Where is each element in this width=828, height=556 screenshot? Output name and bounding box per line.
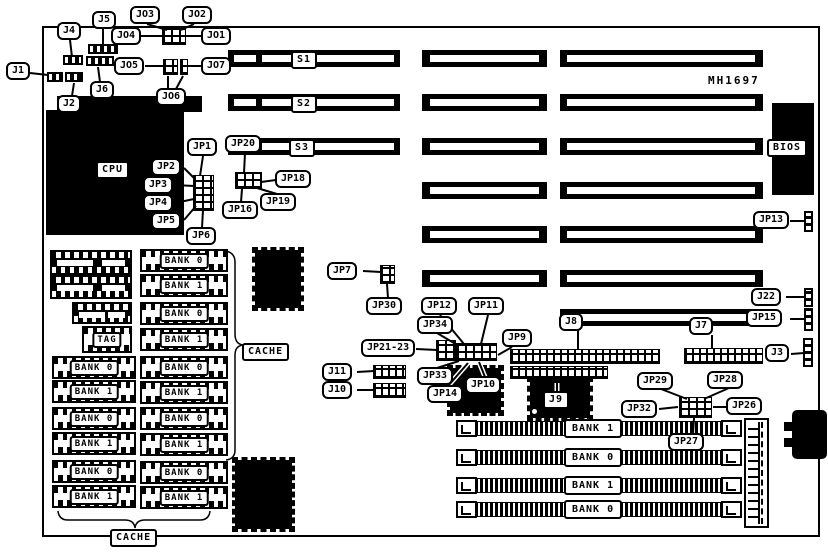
cpu-label: CPU bbox=[96, 161, 129, 179]
j10-connector bbox=[373, 383, 406, 398]
simm-clip-right bbox=[721, 449, 742, 466]
callout-jp30: JP30 bbox=[366, 297, 402, 315]
jp15-connector bbox=[804, 308, 813, 331]
chip-label: BANK 0 bbox=[70, 360, 119, 376]
part-number: MH1697 bbox=[708, 74, 760, 87]
j1-connector-a bbox=[47, 72, 63, 82]
callout-jp5: JP5 bbox=[151, 212, 181, 230]
isa-slot-mid-2 bbox=[422, 94, 547, 111]
cache-chip: BANK 1 bbox=[140, 486, 228, 509]
isa-slot-right-2 bbox=[560, 94, 763, 111]
callout-jo3: JO3 bbox=[130, 6, 160, 24]
chip-label: BANK 1 bbox=[70, 384, 119, 400]
chip-label: BANK 0 bbox=[70, 464, 119, 480]
cache-chip: BANK 0 bbox=[140, 461, 228, 484]
jo5-jumper-block bbox=[163, 59, 178, 75]
pin-header-strip bbox=[510, 366, 608, 379]
slot-label-s1: S1 bbox=[291, 51, 317, 69]
callout-jp18: JP18 bbox=[275, 170, 311, 188]
j9-pin1-dot bbox=[532, 409, 537, 414]
slot-label-s2: S2 bbox=[291, 95, 317, 113]
callout-jp34: JP34 bbox=[417, 316, 453, 334]
jp9-jp14-jumper-block bbox=[456, 343, 497, 361]
chip-label: BANK 1 bbox=[70, 489, 119, 505]
simm-bank-label: BANK 0 bbox=[564, 448, 622, 467]
simm-slot-2: BANK 0 bbox=[456, 449, 742, 467]
chip-label: BANK 1 bbox=[70, 436, 119, 452]
callout-jp33: JP33 bbox=[417, 367, 453, 385]
isa-slot-mid-6 bbox=[422, 270, 547, 287]
callout-j10: J10 bbox=[322, 381, 352, 399]
isa-slot-right-4 bbox=[560, 182, 763, 199]
cache-chip: BANK 1 bbox=[52, 380, 136, 403]
jo1-jo4-jumper-block bbox=[162, 28, 186, 45]
callout-j7: J7 bbox=[689, 317, 713, 335]
jp21-23-jumper-block bbox=[436, 340, 456, 361]
j22-connector bbox=[804, 288, 813, 307]
jp1-jp6-jumper-block bbox=[193, 175, 214, 211]
isa-slot-right-6 bbox=[560, 270, 763, 287]
simm-clip-right bbox=[721, 477, 742, 494]
tag-chip: TAG bbox=[82, 326, 132, 353]
cache-chip: BANK 0 bbox=[140, 302, 228, 325]
dip-socket-unlabeled-2 bbox=[50, 275, 132, 299]
jp26-jp29-jumper-block bbox=[679, 397, 712, 418]
callout-jp20: JP20 bbox=[225, 135, 261, 153]
callout-j8: J8 bbox=[559, 313, 583, 331]
callout-jp21-23: JP21-23 bbox=[361, 339, 415, 357]
callout-jp10: JP10 bbox=[465, 376, 501, 394]
callout-jo7: JO7 bbox=[201, 57, 231, 75]
chip-label: BANK 1 bbox=[160, 278, 209, 294]
callout-jo6: JO6 bbox=[156, 88, 186, 106]
cache-chip: BANK 1 bbox=[140, 328, 228, 351]
callout-jp26: JP26 bbox=[726, 397, 762, 415]
chip-label: BANK 1 bbox=[160, 437, 209, 453]
chip-label: BANK 0 bbox=[160, 253, 209, 269]
isa-slot-right-7 bbox=[560, 309, 758, 326]
j8-pin-header bbox=[510, 349, 660, 364]
j9-label: J9 bbox=[543, 391, 569, 409]
keyboard-connector bbox=[792, 410, 827, 459]
dip-socket-unlabeled-1 bbox=[50, 250, 132, 275]
simm-clip-right bbox=[721, 420, 742, 437]
cache-chip: BANK 0 bbox=[140, 356, 228, 379]
chip-label: BANK 1 bbox=[160, 490, 209, 506]
j7-pin-header bbox=[684, 348, 763, 364]
isa-slot-right-5 bbox=[560, 226, 763, 243]
chip-label: BANK 1 bbox=[160, 385, 209, 401]
power-connector bbox=[744, 418, 769, 528]
jp16-jp20-jumper-block bbox=[235, 172, 262, 189]
callout-j6: J6 bbox=[90, 81, 114, 99]
slot-label-s3: S3 bbox=[289, 139, 315, 157]
callout-jp6: JP6 bbox=[186, 227, 216, 245]
callout-jp28: JP28 bbox=[707, 371, 743, 389]
callout-jp32: JP32 bbox=[621, 400, 657, 418]
cache-chip: BANK 1 bbox=[140, 381, 228, 404]
j5-connector bbox=[88, 44, 118, 54]
j2-connector bbox=[65, 72, 83, 82]
jp13-connector bbox=[804, 211, 813, 232]
simm-bank-label: BANK 1 bbox=[564, 419, 622, 438]
callout-j1: J1 bbox=[6, 62, 30, 80]
isa-slot-mid-3 bbox=[422, 138, 547, 155]
cache-label-right: CACHE bbox=[242, 343, 289, 361]
jp7-jumper-block bbox=[380, 265, 395, 284]
callout-jp27: JP27 bbox=[668, 433, 704, 451]
simm-clip-left bbox=[456, 501, 477, 518]
cache-chip: BANK 0 bbox=[140, 249, 228, 272]
chip-label: BANK 0 bbox=[160, 360, 209, 376]
callout-jp15: JP15 bbox=[746, 309, 782, 327]
j4-connector bbox=[63, 55, 83, 65]
callout-jp14: JP14 bbox=[427, 385, 463, 403]
chip-label: BANK 0 bbox=[160, 465, 209, 481]
dip-socket-unlabeled-3 bbox=[72, 302, 132, 324]
callout-j11: J11 bbox=[322, 363, 352, 381]
callout-jp9: JP9 bbox=[502, 329, 532, 347]
callout-jo2: JO2 bbox=[182, 6, 212, 24]
bios-label: BIOS bbox=[767, 139, 807, 157]
qfp-chip-lower bbox=[232, 457, 295, 532]
callout-j3: J3 bbox=[765, 344, 789, 362]
callout-j5: J5 bbox=[92, 11, 116, 29]
simm-slot-3: BANK 1 bbox=[456, 477, 742, 495]
simm-bank-label: BANK 0 bbox=[564, 500, 622, 519]
cache-chip: BANK 0 bbox=[140, 407, 228, 430]
cache-chip: BANK 1 bbox=[52, 485, 136, 508]
callout-jo4: JO4 bbox=[111, 27, 141, 45]
simm-clip-right bbox=[721, 501, 742, 518]
qfp-chip-upper bbox=[252, 247, 304, 311]
callout-jp12: JP12 bbox=[421, 297, 457, 315]
simm-clip-left bbox=[456, 420, 477, 437]
isa-slot-mid-4 bbox=[422, 182, 547, 199]
j6-connector bbox=[86, 56, 114, 66]
isa-slot-right-1 bbox=[560, 50, 763, 67]
simm-bank-label: BANK 1 bbox=[564, 476, 622, 495]
chip-label: TAG bbox=[92, 332, 121, 348]
cache-label-bottom: CACHE bbox=[110, 529, 157, 547]
callout-jp2: JP2 bbox=[151, 158, 181, 176]
cache-chip: BANK 1 bbox=[140, 433, 228, 456]
callout-j22: J22 bbox=[751, 288, 781, 306]
chip-label: BANK 0 bbox=[70, 411, 119, 427]
motherboard-diagram: CPU BIOS MH1697 J9 TAG BANK 0 BANK 1 B bbox=[0, 0, 828, 556]
chip-label: BANK 0 bbox=[160, 411, 209, 427]
cache-chip: BANK 1 bbox=[140, 274, 228, 297]
callout-jp4: JP4 bbox=[143, 194, 173, 212]
chip-label: BANK 1 bbox=[160, 332, 209, 348]
callout-jp16: JP16 bbox=[222, 201, 258, 219]
isa-slot-mid-5 bbox=[422, 226, 547, 243]
callout-jp13: JP13 bbox=[753, 211, 789, 229]
callout-jp11: JP11 bbox=[468, 297, 504, 315]
chip-label: BANK 0 bbox=[160, 306, 209, 322]
cache-chip: BANK 0 bbox=[52, 460, 136, 483]
callout-j2: J2 bbox=[57, 95, 81, 113]
jo7-jumper-block bbox=[180, 59, 188, 75]
callout-j4: J4 bbox=[57, 22, 81, 40]
simm-slot-4: BANK 0 bbox=[456, 501, 742, 519]
isa-slot-right-3 bbox=[560, 138, 763, 155]
simm-clip-left bbox=[456, 477, 477, 494]
isa-slot-mid-1 bbox=[422, 50, 547, 67]
cache-chip: BANK 0 bbox=[52, 356, 136, 379]
callout-jo5: JO5 bbox=[114, 57, 144, 75]
cache-chip: BANK 0 bbox=[52, 407, 136, 430]
callout-jp29: JP29 bbox=[637, 372, 673, 390]
callout-jo1: JO1 bbox=[201, 27, 231, 45]
simm-clip-left bbox=[456, 449, 477, 466]
callout-jp3: JP3 bbox=[143, 176, 173, 194]
j11-connector bbox=[373, 365, 406, 379]
j3-connector bbox=[803, 338, 813, 367]
callout-jp7: JP7 bbox=[327, 262, 357, 280]
callout-jp19: JP19 bbox=[260, 193, 296, 211]
cache-chip: BANK 1 bbox=[52, 432, 136, 455]
callout-jp1: JP1 bbox=[187, 138, 217, 156]
